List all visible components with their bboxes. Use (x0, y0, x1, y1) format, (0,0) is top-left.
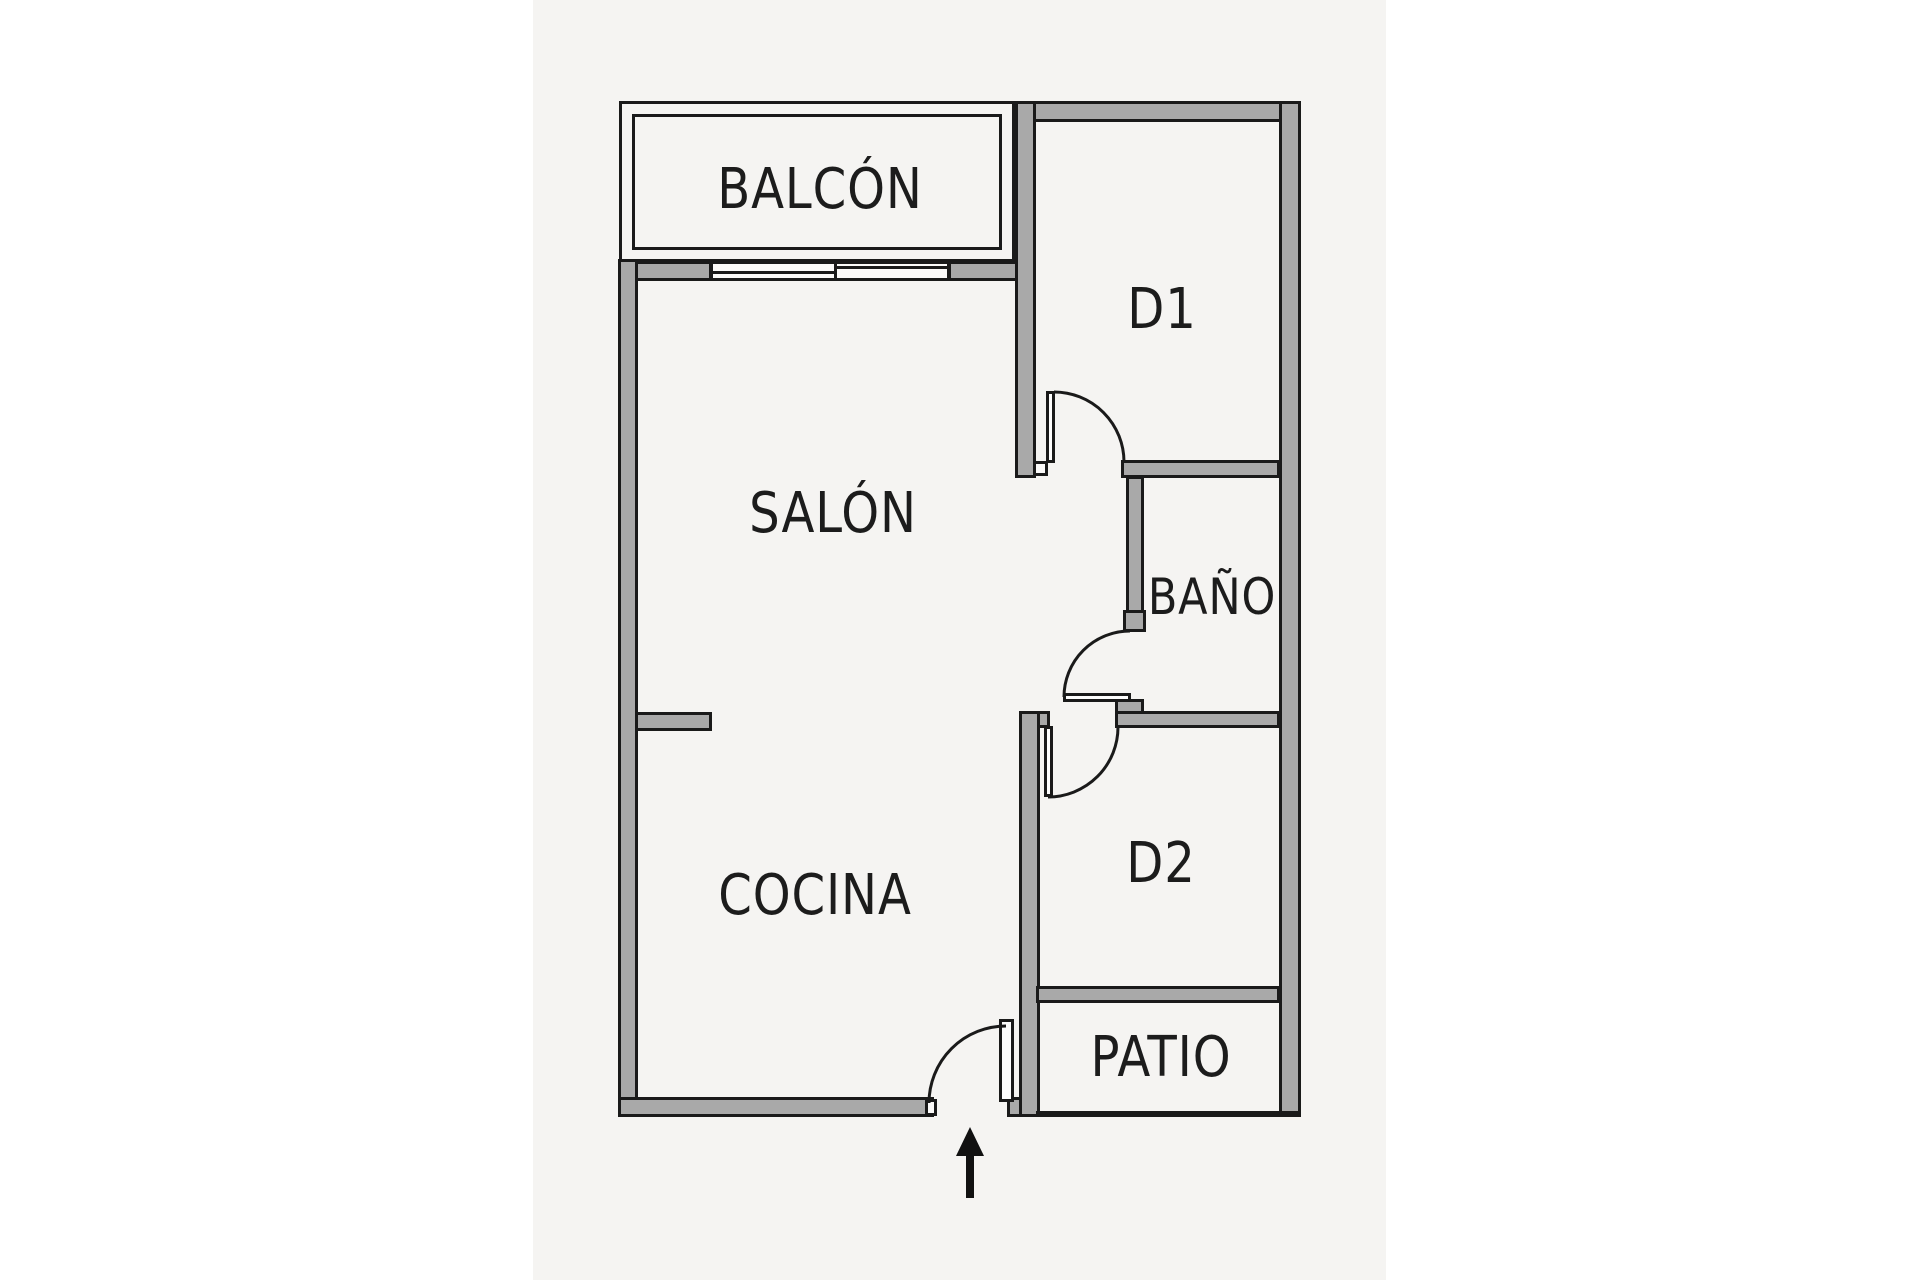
salon-cocina-stub-wall (635, 712, 712, 731)
window-sash-line-left (710, 271, 837, 274)
window-sill-wall-right (948, 261, 1018, 281)
bathroom-left-wall (1126, 476, 1144, 632)
d1-bottom-wall (1121, 460, 1280, 478)
top-wall (1013, 101, 1301, 122)
left-wall (618, 259, 638, 1117)
room-label-bano: BAÑO (1148, 572, 1276, 622)
room-label-cocina: COCINA (718, 868, 912, 924)
room-label-patio: PATIO (1091, 1030, 1232, 1086)
bathroom-door-jamb (1123, 610, 1146, 632)
entrance-door-leaf (999, 1019, 1014, 1102)
wall-between-salon-and-d1 (1015, 101, 1036, 478)
bottom-wall (618, 1097, 934, 1117)
d2-door-leaf (1044, 726, 1053, 797)
floorplan-screenshot: BALCÓN D1 SALÓN BAÑO D2 COCINA PATIO (0, 0, 1920, 1280)
salon-east-wall (1019, 711, 1040, 1117)
window-sash-line-right (834, 266, 950, 269)
d1-door-leaf (1046, 391, 1055, 463)
window-sill-wall-left (635, 261, 712, 281)
right-wall (1279, 101, 1301, 1117)
room-label-balcon: BALCÓN (717, 162, 923, 218)
room-label-d1: D1 (1127, 282, 1196, 338)
room-label-d2: D2 (1126, 836, 1195, 892)
patio-top-wall (1036, 986, 1280, 1003)
entrance-door-jamb (925, 1099, 937, 1116)
patio-bottom-wall (1036, 1111, 1298, 1117)
d1-door-jamb (1033, 461, 1048, 476)
room-label-salon: SALÓN (749, 486, 917, 542)
bathroom-door-leaf (1063, 693, 1131, 702)
d2-top-wall (1115, 711, 1280, 728)
